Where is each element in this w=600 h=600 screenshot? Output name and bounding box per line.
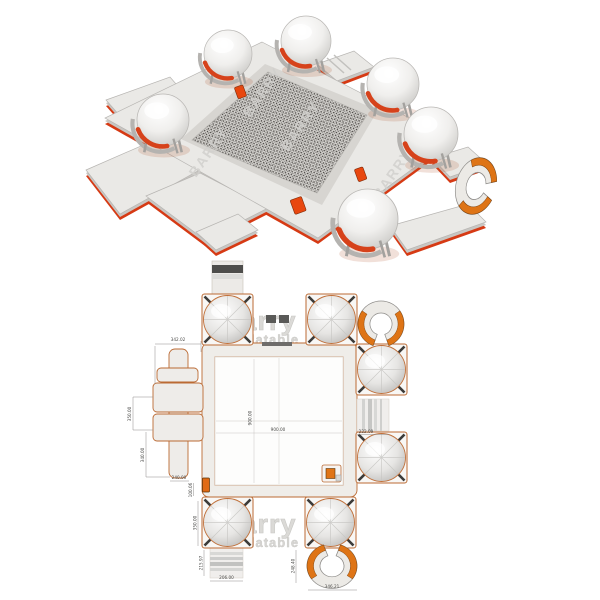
dome-3d-top-center [277, 16, 332, 77]
horseshoe-connector-bottom [307, 545, 357, 589]
dome-module-bottom-left [202, 497, 253, 548]
dim-left-lower: 340.00 [140, 447, 145, 462]
left-cross-platform [153, 349, 203, 478]
plan-view: Barry Inflatable Barry Inflatable 900.00… [127, 261, 407, 590]
top-walkway [212, 261, 243, 295]
dome-module-bottom-center [305, 497, 356, 548]
right-walkway [357, 399, 389, 431]
dim-edge-gap: 100.06 [188, 482, 193, 497]
deck-seam [262, 342, 292, 346]
dome-module-top-left [202, 294, 253, 345]
deck-handle [279, 315, 289, 323]
dim-pool-width: 900.00 [271, 427, 286, 432]
illustration-svg: BARRY BARRY BARRY BARRY Barry Inflatable… [0, 0, 600, 600]
dim-top-left: 342.02 [171, 337, 186, 342]
dim-cross-width: 240.00 [172, 475, 187, 480]
dim-horseshoe-height: 248.40 [291, 558, 296, 573]
dim-pool-height: 900.00 [248, 410, 253, 425]
bottom-walkway [210, 548, 243, 578]
deck-handle [266, 315, 276, 323]
dim-bottom-width: 346.21 [325, 584, 340, 589]
step-detail [322, 465, 341, 482]
dim-walkway-width: 206.00 [219, 575, 234, 580]
horseshoe-connector-top-right [358, 301, 404, 346]
dim-right-walkway: 222.09 [359, 429, 374, 434]
product-image: BARRY BARRY BARRY BARRY Barry Inflatable… [0, 0, 600, 600]
dome-module-right-upper [356, 344, 407, 395]
dim-left-upper: 350.00 [127, 406, 132, 421]
render-3d-view: BARRY BARRY BARRY BARRY [86, 16, 502, 262]
dome-module-top-right [306, 294, 357, 345]
dome-module-right-lower [356, 432, 407, 483]
dome-3d-top-left [200, 30, 253, 89]
orange-dock-marker [203, 478, 210, 492]
dim-walkway-height: 215.97 [199, 555, 204, 570]
dim-bottom-dome: 350.00 [193, 515, 198, 530]
